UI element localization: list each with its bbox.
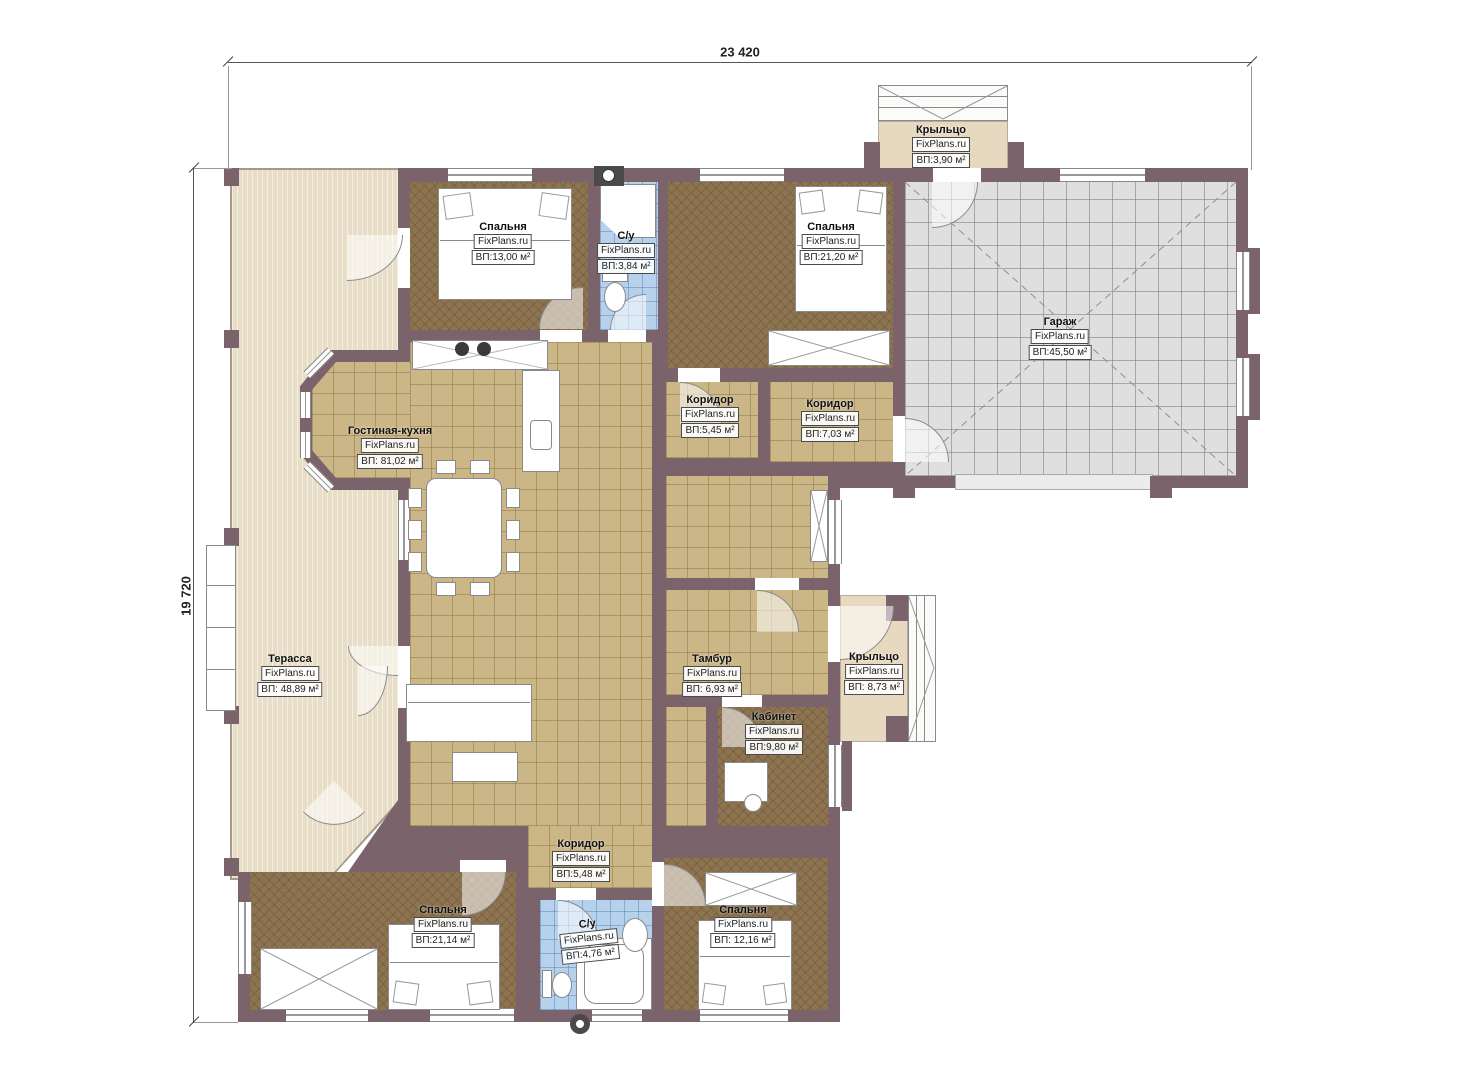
room-label-bedroom-bottom-right: Спальня FixPlans.ru ВП: 12,16 м² <box>710 904 775 948</box>
pillow <box>763 983 788 1006</box>
room-label-corridor-bottom: Коридор FixPlans.ru ВП:5,48 м² <box>552 838 610 882</box>
window <box>238 902 252 974</box>
chair <box>408 520 422 540</box>
room-label-corridor-mid-left: Коридор FixPlans.ru ВП:5,45 м² <box>681 394 739 438</box>
dimension-label-left: 19 720 <box>179 576 194 616</box>
dimension-label-top: 23 420 <box>720 45 760 60</box>
watermark: FixPlans.ru <box>912 137 970 152</box>
room-label-corridor-mid-right: Коридор FixPlans.ru ВП:7,03 м² <box>801 398 859 442</box>
room-area: ВП: 48,89 м² <box>257 682 322 697</box>
room-area: ВП:3,90 м² <box>912 153 969 168</box>
porch-top-pilaster <box>1008 142 1024 172</box>
room-name: С/у <box>578 917 596 931</box>
room-label-tambur: Тамбур FixPlans.ru ВП: 6,93 м² <box>682 653 742 697</box>
wardrobe <box>260 948 378 1010</box>
room-name: Крыльцо <box>849 651 899 663</box>
porch-top-pilaster <box>864 142 880 172</box>
watermark: FixPlans.ru <box>845 664 903 679</box>
chair <box>436 460 456 474</box>
watermark: FixPlans.ru <box>597 243 655 258</box>
bay-window-mullion <box>207 627 235 628</box>
room-area: ВП:3,84 м² <box>597 259 654 274</box>
pillow <box>393 980 420 1005</box>
watermark: FixPlans.ru <box>261 666 319 681</box>
chair <box>408 488 422 508</box>
bay-window <box>300 432 311 458</box>
window <box>700 168 784 182</box>
kitchen-sink <box>530 420 552 450</box>
window <box>828 745 842 807</box>
porch-right-canopy-icon <box>908 595 936 742</box>
room-area: ВП:45,50 м² <box>1029 345 1092 360</box>
window <box>1060 168 1145 182</box>
pillow <box>442 192 473 220</box>
chair <box>506 552 520 572</box>
pillow <box>467 980 494 1005</box>
room-name: Коридор <box>806 398 853 410</box>
pillow <box>702 983 727 1006</box>
chair <box>408 552 422 572</box>
dimension-extension-line <box>193 168 232 169</box>
watermark: FixPlans.ru <box>474 234 532 249</box>
room-area: ВП:21,20 м² <box>800 250 863 265</box>
room-name: Спальня <box>419 904 467 916</box>
chair <box>470 582 490 596</box>
room-area: ВП:9,80 м² <box>745 740 802 755</box>
room-area: ВП:21,14 м² <box>412 933 475 948</box>
floor-hall-lower <box>666 707 706 826</box>
door-opening <box>460 860 506 872</box>
pillow <box>799 189 826 214</box>
room-label-bedroom-bottom-left: Спальня FixPlans.ru ВП:21,14 м² <box>412 904 475 948</box>
room-name: Терасса <box>268 653 312 665</box>
toilet-bowl <box>604 282 626 312</box>
door-opening <box>556 888 596 900</box>
window <box>828 500 842 564</box>
watermark: FixPlans.ru <box>681 407 739 422</box>
terrace-post <box>224 858 239 876</box>
desk-chair <box>744 794 762 812</box>
room-name: Тамбур <box>692 653 732 665</box>
door-opening <box>933 168 981 182</box>
garage-gate-pilaster <box>893 476 915 498</box>
chimney-flue <box>602 169 615 182</box>
watermark: FixPlans.ru <box>414 917 472 932</box>
terrace-post <box>224 528 239 546</box>
room-area: ВП: 8,73 м² <box>844 680 904 695</box>
wardrobe <box>705 872 797 906</box>
room-area: ВП:7,03 м² <box>801 427 858 442</box>
watermark: FixPlans.ru <box>802 234 860 249</box>
watermark: FixPlans.ru <box>745 724 803 739</box>
watermark: FixPlans.ru <box>801 411 859 426</box>
room-label-porch-top: Крыльцо FixPlans.ru ВП:3,90 м² <box>912 124 970 168</box>
terrace-deck <box>232 170 405 878</box>
terrace-bay-window <box>206 545 236 711</box>
window-sill <box>842 741 852 811</box>
stove-burner <box>455 342 469 356</box>
room-area: ВП: 6,93 м² <box>682 682 742 697</box>
room-name: Крыльцо <box>916 124 966 136</box>
room-label-bathroom-bottom: С/у FixPlans.ru ВП:4,76 м² <box>558 915 620 965</box>
room-label-porch-right: Крыльцо FixPlans.ru ВП: 8,73 м² <box>844 651 904 695</box>
window <box>1236 358 1250 416</box>
room-label-kabinet: Кабинет FixPlans.ru ВП:9,80 м² <box>745 711 803 755</box>
window <box>286 1008 368 1022</box>
floor-plan: Спальня FixPlans.ru ВП:13,00 м² С/у FixP… <box>0 0 1474 1080</box>
pillow <box>857 189 884 214</box>
dimension-extension-line <box>193 1022 238 1023</box>
watermark: FixPlans.ru <box>683 666 741 681</box>
sofa-seat-line <box>408 702 530 703</box>
porch-right-pilaster <box>886 716 908 742</box>
window <box>1236 252 1250 310</box>
sofa <box>406 684 532 742</box>
blanket-line <box>700 956 790 957</box>
room-label-bedroom-top-left: Спальня FixPlans.ru ВП:13,00 м² <box>472 221 535 265</box>
door-opening <box>893 416 905 462</box>
room-area: ВП:5,45 м² <box>681 423 738 438</box>
pillow <box>538 192 569 220</box>
room-name: Гараж <box>1044 316 1077 328</box>
garage-gate-pilaster <box>1150 476 1172 498</box>
dining-table <box>426 478 502 578</box>
bay-window-mullion <box>207 585 235 586</box>
chair <box>506 488 520 508</box>
window <box>592 1008 642 1022</box>
room-name: Гостиная-кухня <box>348 425 432 437</box>
room-area: ВП: 81,02 м² <box>357 454 422 469</box>
door-opening <box>608 330 646 342</box>
wardrobe <box>810 490 828 562</box>
watermark: FixPlans.ru <box>714 917 772 932</box>
door-opening <box>678 368 720 382</box>
dimension-line-top <box>228 62 1252 63</box>
tambur-partition-wall <box>666 578 828 590</box>
dimension-extension-line <box>1251 66 1252 170</box>
room-label-garage: Гараж FixPlans.ru ВП:45,50 м² <box>1029 316 1092 360</box>
stove-burner <box>477 342 491 356</box>
blanket-line <box>390 962 498 963</box>
toilet-tank <box>542 970 552 998</box>
chair <box>436 582 456 596</box>
room-name: С/у <box>617 230 634 242</box>
room-name: Спальня <box>807 221 855 233</box>
room-label-bathroom-top: С/у FixPlans.ru ВП:3,84 м² <box>597 230 655 274</box>
room-area: ВП:13,00 м² <box>472 250 535 265</box>
washbasin <box>622 918 648 952</box>
dimension-extension-line <box>228 66 229 170</box>
window <box>448 168 532 182</box>
door-opening <box>755 578 799 590</box>
drain-fixture-center <box>576 1020 584 1028</box>
door-opening <box>828 606 840 662</box>
room-name: Кабинет <box>752 711 797 723</box>
room-label-bedroom-top-right: Спальня FixPlans.ru ВП:21,20 м² <box>800 221 863 265</box>
room-name: Коридор <box>557 838 604 850</box>
terrace-post <box>224 168 239 186</box>
window <box>700 1008 788 1022</box>
room-area: ВП: 12,16 м² <box>710 933 775 948</box>
room-label-terrace: Терасса FixPlans.ru ВП: 48,89 м² <box>257 653 322 697</box>
coffee-table <box>452 752 518 782</box>
room-name: Спальня <box>719 904 767 916</box>
chair <box>506 520 520 540</box>
wardrobe <box>768 330 890 366</box>
watermark: FixPlans.ru <box>361 438 419 453</box>
window <box>430 1008 514 1022</box>
room-label-living-kitchen: Гостиная-кухня FixPlans.ru ВП: 81,02 м² <box>348 425 432 469</box>
room-name: Спальня <box>479 221 527 233</box>
chair <box>470 460 490 474</box>
door-opening <box>652 862 664 906</box>
bay-window <box>300 392 311 418</box>
watermark: FixPlans.ru <box>552 851 610 866</box>
watermark: FixPlans.ru <box>1031 329 1089 344</box>
terrace-post <box>224 330 239 348</box>
bay-window-mullion <box>207 669 235 670</box>
garage-gate <box>955 474 1153 490</box>
room-area: ВП:5,48 м² <box>552 867 609 882</box>
porch-top-canopy-icon <box>878 85 1008 121</box>
room-name: Коридор <box>686 394 733 406</box>
toilet-bowl <box>552 972 572 998</box>
